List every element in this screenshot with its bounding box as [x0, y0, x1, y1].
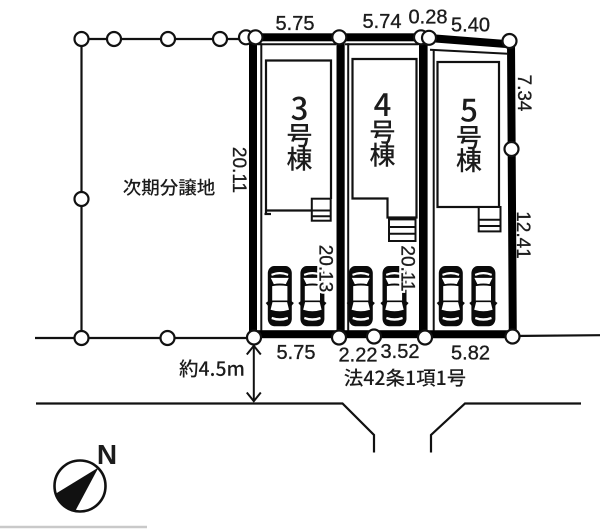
svg-text:2.22: 2.22 — [339, 345, 378, 367]
svg-text:20.11: 20.11 — [228, 147, 249, 193]
svg-text:N: N — [97, 439, 117, 470]
svg-text:7.34: 7.34 — [513, 75, 534, 112]
svg-text:3.52: 3.52 — [381, 341, 420, 363]
svg-text:12.41: 12.41 — [512, 211, 533, 259]
svg-text:20.11: 20.11 — [396, 245, 417, 291]
svg-text:5.82: 5.82 — [451, 343, 490, 365]
svg-text:0.28: 0.28 — [409, 7, 448, 29]
svg-text:5.74: 5.74 — [363, 11, 402, 33]
svg-text:5.75: 5.75 — [276, 13, 315, 35]
svg-text:20.13: 20.13 — [314, 245, 335, 293]
svg-text:5.40: 5.40 — [451, 15, 490, 37]
svg-text:5.75: 5.75 — [277, 342, 316, 364]
